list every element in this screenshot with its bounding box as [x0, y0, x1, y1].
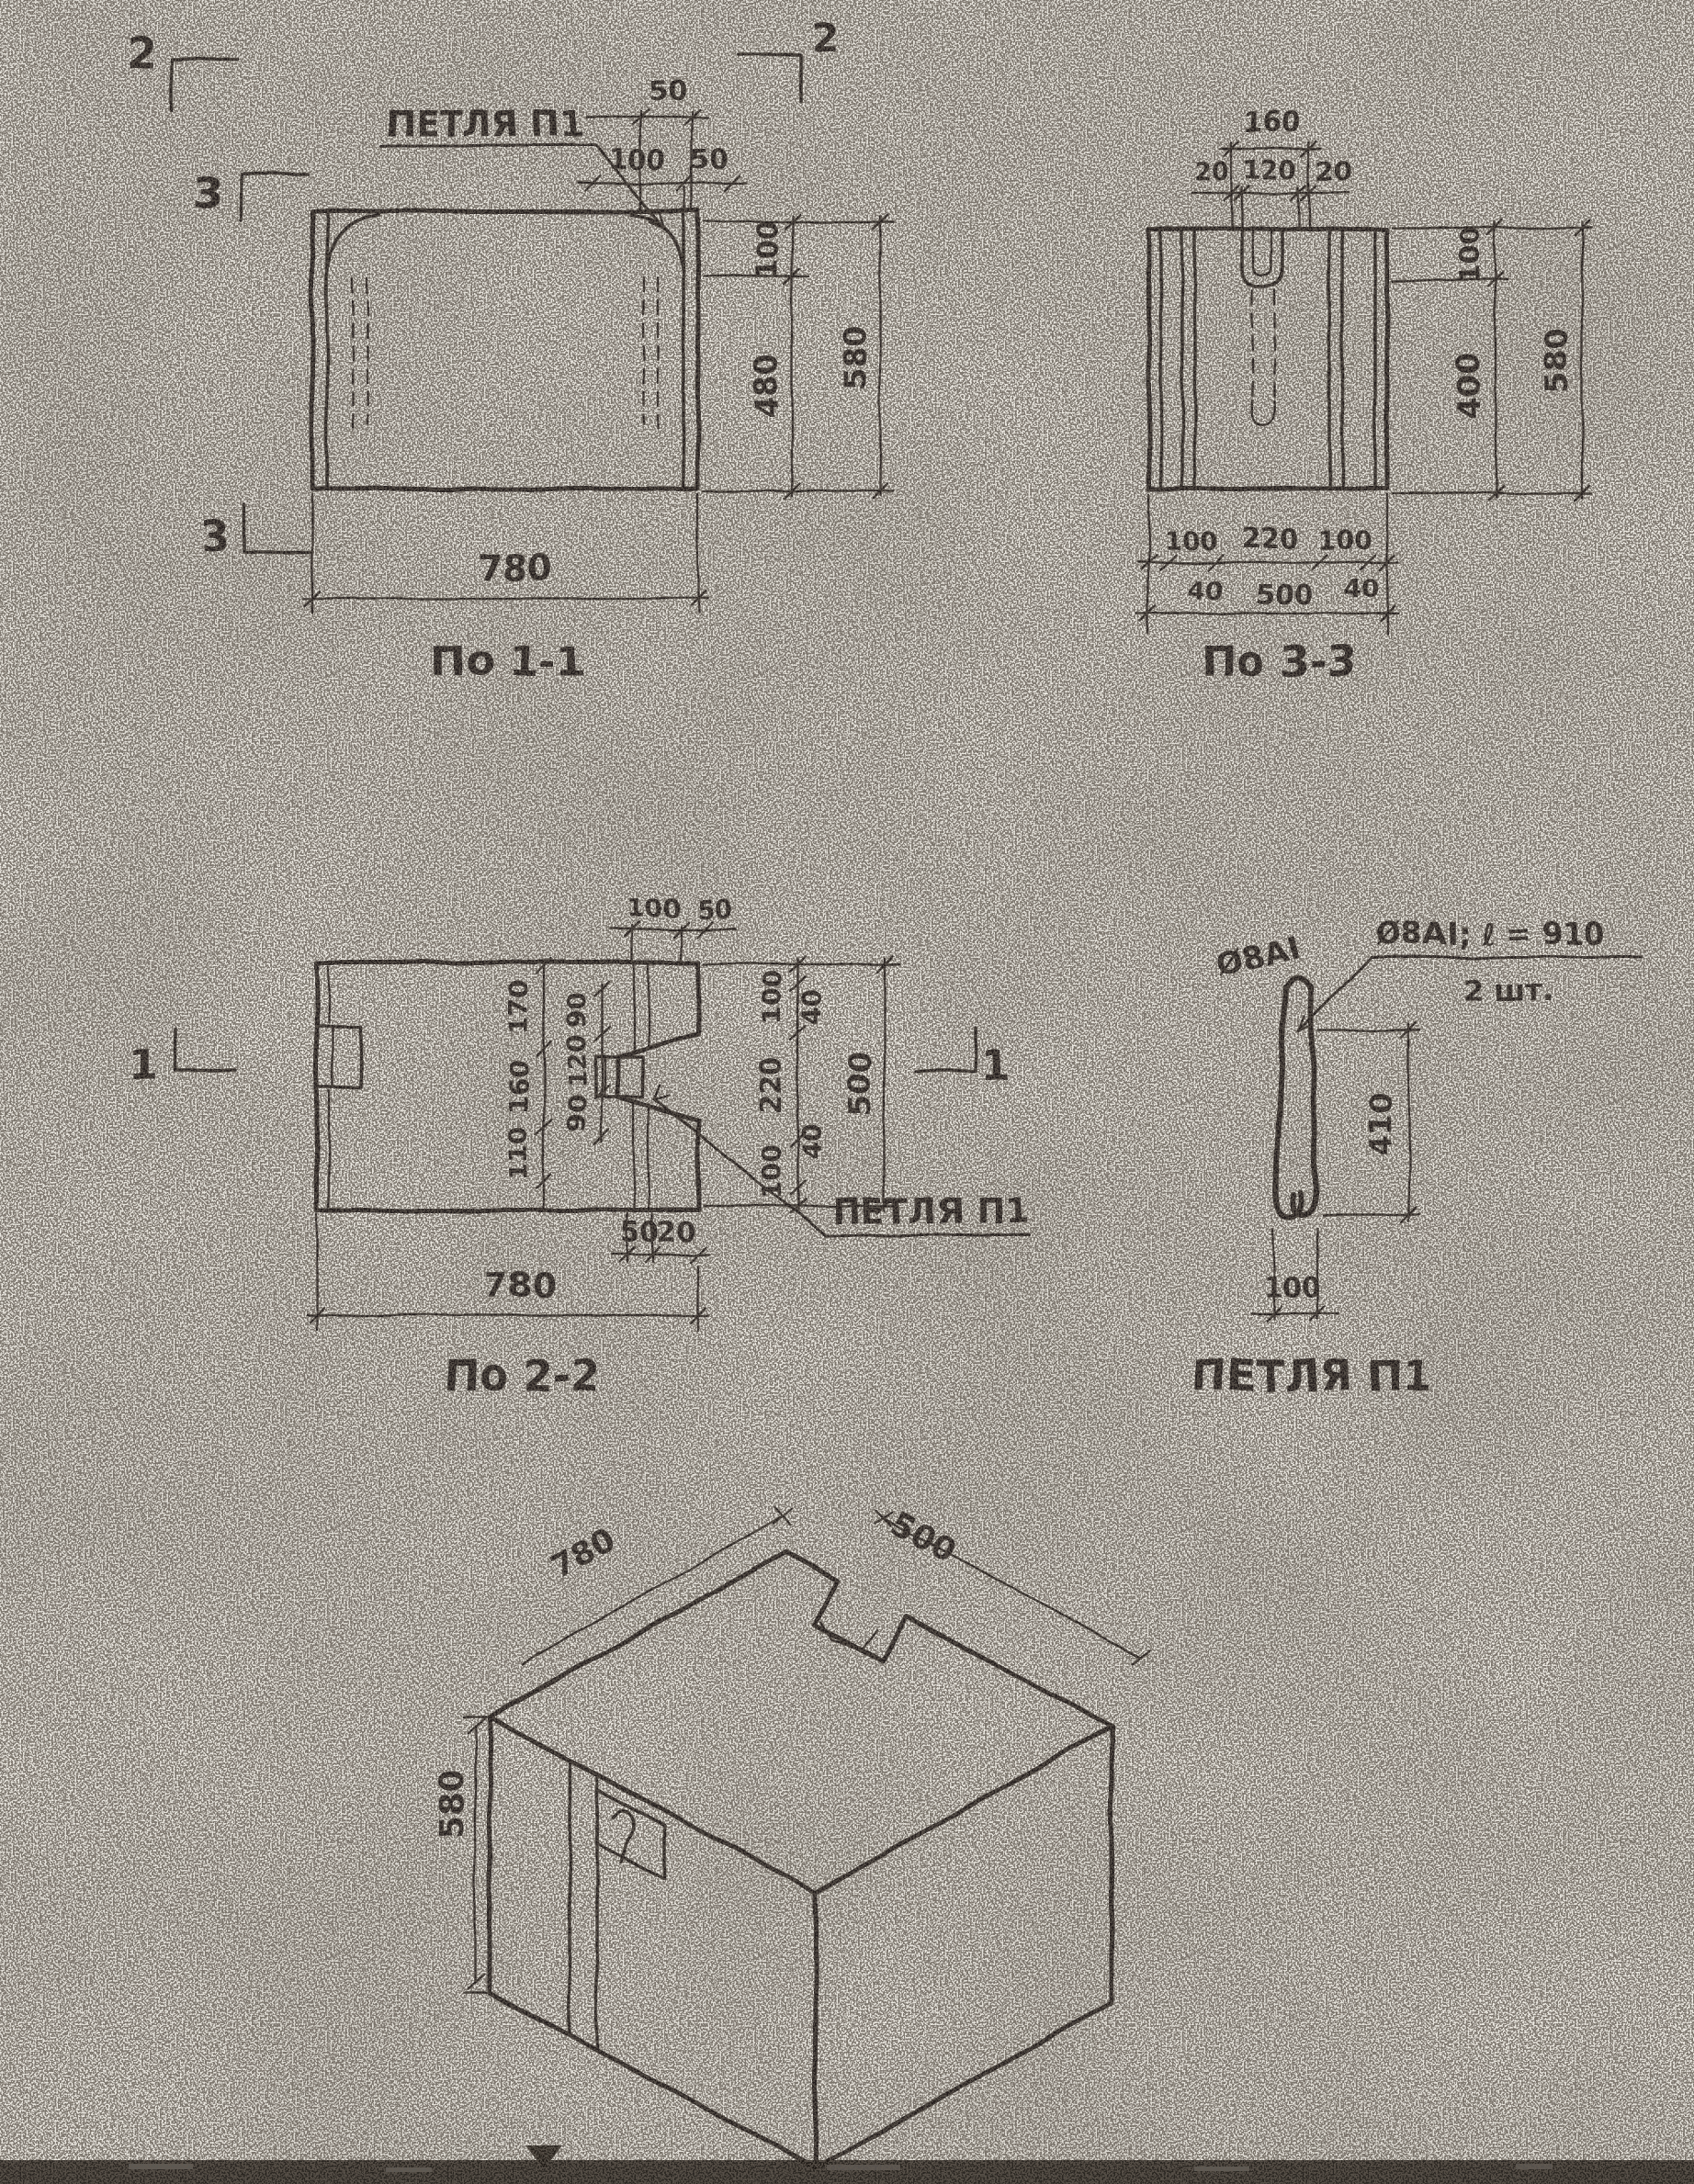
scanned-blueprint-page: ПЕТЛЯ П1 2 2 3 3 50 100 50 100 480 580: [0, 0, 1694, 2184]
scan-speckle-noise: [0, 0, 1694, 2184]
concrete-block-drawing: ПЕТЛЯ П1 2 2 3 3 50 100 50 100 480 580: [0, 0, 1694, 2184]
